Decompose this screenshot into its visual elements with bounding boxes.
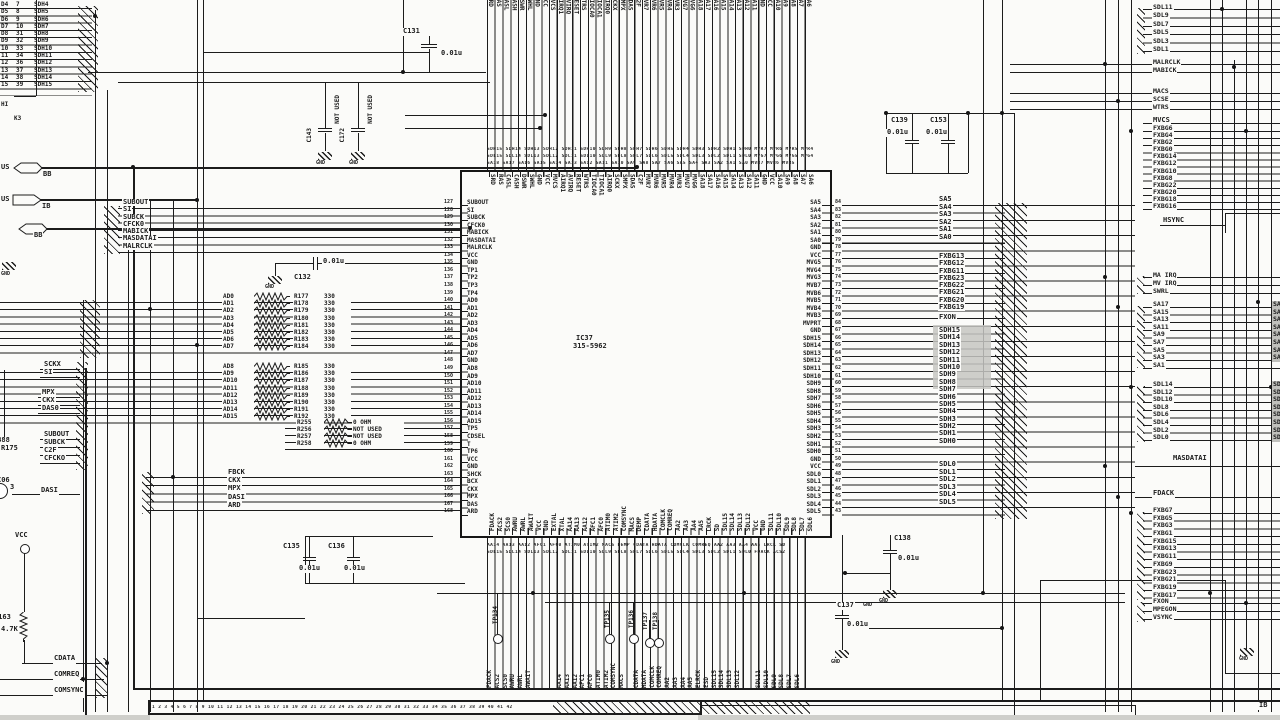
resistor-row: AD7 R184330 [222,343,351,350]
bus-tag-id: BB [42,171,52,179]
connector-row: D710SDH7 [0,23,81,30]
cap-note: NOT USED [367,95,374,124]
pin-number: 3 [9,484,15,492]
left-sig-g3: SUBOUTSUBCKC2FCFCKO [43,430,70,462]
bottom-net-labels-g2: AA14AA13AA12AFC1AFC0ATIM0ATIM2COMSYNCMAC… [556,650,626,688]
net-label-fdack: FDACK [1152,490,1175,498]
resistor-icon [254,412,290,421]
bottom-net-labels-g3: CDATAHDATACOMCLKCOMREQAA2AA3AA4AA5ELRCKE… [633,650,742,688]
bus-net-row: SDH15 SDH14 SDH13 SDH12 SDH11 SDH10 SDH9… [487,147,960,152]
wire-bundle [822,205,830,518]
testpoint-icon [654,638,664,648]
gnd-label: GND [315,161,326,167]
bus-net-row: AA14 AA13 AA12 AFC1 AFC0 ATIM0 ATIM2 MAC… [487,543,809,548]
bus-tag-id: IB [41,203,51,211]
cap-value: 0.01u [440,50,463,58]
cap-ref: C135 [282,543,301,551]
left-bottom-signals: CDATACOMREQCOMSYNC [53,650,85,698]
bus-tag-name: US [0,196,10,204]
bus-net-row: SA18 SA17 SA16 SA15 SA14 SA13 SA12 SA11 … [487,161,960,166]
ic-part-number: 315-5962 [572,343,608,351]
connector-row: 1337SDH13 [0,67,81,74]
testpoint-label: TP136 [628,610,635,628]
testpoint-icon [629,634,639,644]
resistor-row: R258 0 OHM [293,440,404,447]
bus-tag-icon [12,194,42,206]
junction-dot [1000,626,1004,630]
ic-right-pin-numbers: 8483828180797877767574737271706968676665… [834,199,842,516]
resistor-array-low: AD0 R177330 AD1 R178330 AD2 R179330 AD3 … [222,293,351,351]
cap-ref: C172 [339,128,346,142]
junction-dot [148,307,152,311]
edge-col-clk: MALRCLKMABICK [1152,58,1181,74]
connector-row: 1438SDH14 [0,74,81,81]
cap-ref: C139 [890,117,909,125]
top-edge-net-labels: SRDRASCASLCASHDSWRSWHLGNDVCCMVCSAIRQ1AVI… [487,0,813,18]
bus-net-row: SDL15 SDL14 SDL13 SDL12 SDL11 SDL10 SDL9… [487,154,960,159]
sub-net-labels: SUBOUTSISUBCKCFCK0MABICKMASDATAIMALRCLK [122,199,158,250]
junction-dot [1103,62,1107,66]
gnd-label: GND [264,285,275,291]
edge-col-fxbg-odd: FXBG7FXBG5FXBG3FXBG1FXBG15FXBG13FXBG11FX… [1152,507,1177,599]
edge-col-irq: MA IRQMV IRQSWRL [1152,271,1177,295]
connector-row: D831SDH8 [0,30,81,37]
junction-dot [1103,464,1107,468]
testpoint-icon [605,634,615,644]
signal-labels: FBCKCKXMPXDASIARD [227,468,246,509]
junction-dot [531,591,535,595]
cap-value: 0.01u [322,258,345,266]
cap-ref: C138 [893,535,912,543]
junction-dot [1244,129,1248,133]
net-col-sdh: SDH15SDH14SDH13SDH12SDH11SDH10SDH9SDH8SD… [938,327,961,445]
junction-dot [1208,591,1212,595]
bus-tag-id: IB [1258,702,1268,710]
junction-dot [1244,601,1248,605]
edge-col-sdl-odd: SDL11SDL9SDL7SDL5SDL3SDL1 [1152,3,1174,53]
net-col-sa: SA5SA4SA3SA2SA1SA0 [938,196,953,241]
pin-stub-layer [0,0,1280,720]
connector-row: 1134SDH11 [0,52,81,59]
bottom-net-labels-g1: FDACKACS2SCS0AWRUAWRLAWAIT [486,650,533,688]
junction-dot [1103,275,1107,279]
resistor-ref-clipped: R175 [0,445,19,453]
junction-dot [1129,385,1133,389]
edge-col-fxbg-even: FXBG6FXBG4FXBG2FXBG0FXBG14FXBG12FXBG10FX… [1152,125,1177,210]
pin-number-row: 1 2 3 4 5 6 7 8 9 10 11 12 13 14 15 16 1… [152,705,697,710]
cap-ref: C131 [402,28,421,36]
junction-dot [742,591,746,595]
connector-row: D932SDH9 [0,37,81,44]
junction-dot [105,661,109,665]
edge-col-sdl-even: SDL14SDL12SDL10SDL8SDL6SDL4SDL2SDL0 [1152,381,1174,442]
net-col-sdl: SDL0SDL1SDL2SDL3SDL4SDL5 [938,461,957,506]
junction-dot [543,113,547,117]
bus-net-row: SDL15 SDL14 SDL13 SDL12 SDL11 SDL10 SDL9… [487,550,809,555]
junction-dot [1116,305,1120,309]
resistor-icon [254,342,290,351]
testpoint-label: TP134 [492,606,499,624]
junction-dot [93,14,97,18]
testpoint-label: TP135 [604,610,611,628]
net-label-dasi: DASI [40,487,59,495]
net-col-fxbg: FXBG13FXBG12FXBG11FXBG23FXBG22FXBG21FXBG… [938,253,965,311]
cap-value: 0.01u [298,565,321,573]
resistor-icon [19,612,28,642]
ic-bottom-pin-labels: FDACKACS2SCS0AWRUAWRLAWAITVCCGNDEXTALXTA… [489,447,815,531]
edge-col-misc: FXONMPEGONVSYNC [1152,597,1177,621]
junction-dot [538,126,542,130]
cap-ref: C132 [293,274,312,282]
testpoint-label: TP137 [642,612,649,630]
gnd-label: GND [0,272,11,278]
testpoint-icon [493,634,503,644]
cap-value: 0.01u [925,129,948,137]
junction-dot [195,198,199,202]
junction-dot [1129,511,1133,515]
junction-dot [966,111,970,115]
junction-dot [171,475,175,479]
bus-tag-id: BB [33,232,43,240]
vcc-label: VCC [14,532,29,540]
junction-dot [981,591,985,595]
connector-ref: K3 [13,116,22,123]
junction-dot [884,111,888,115]
resistor-icon [324,439,352,448]
cap-value: 0.01u [846,621,869,629]
edge-col-ctl: MACSSCSEWTRS [1152,87,1170,111]
cap-ref: C153 [929,117,948,125]
connector-row: 1539SDH15 [0,81,81,88]
ic-top-pin-labels: SRDRASCASLCASHDSWRSWHLGNDVCCMVCSAIRQ1AVI… [489,174,815,196]
cap-note: NOT USED [334,95,341,124]
edge-col-sa-odd: SA17SA15SA13SA11SA9SA7SA5SA3SA1 [1152,301,1170,369]
junction-dot [131,165,135,169]
gnd-label: GND [878,599,889,605]
connector-row: 1236SDH12 [0,59,81,66]
sheet-edge-box [150,715,698,720]
cap-ref: C136 [327,543,346,551]
cap-ref: C137 [836,602,855,610]
ic-left-pin-numbers: 1271281291301311321331341351361371381391… [428,199,454,516]
gnd-label: GND [1238,657,1249,663]
schematic-sheet: IC37 315-5962 12712812913013113213313413… [0,0,1280,720]
resistor-value: 4.7K [0,626,19,634]
left-sig-g1: SCKXSI [43,360,62,376]
junction-dot [843,571,847,575]
connector-row: 1033SDH10 [0,45,81,52]
left-sig-g2: MPXCKXDAS0 [41,388,60,412]
connector-row: D58SDH5 [0,8,81,15]
junction-dot [401,70,405,74]
junction-dot [1116,495,1120,499]
bus-tag-icon [13,162,43,174]
edge-col-clipped-sdl: SDL15SDL13SDL11SDL9SDL7SDL5SDL3SDL1 [1272,381,1280,442]
junction-dot [1256,300,1260,304]
bottom-net-labels-g4: SDL11SDL10SDL9SDL8SDL7SDL6 [755,650,802,688]
testpoint-label: TP138 [652,612,659,630]
junction-dot [1220,7,1224,11]
connector-hi-label: HI [0,102,9,109]
junction-dot [1000,111,1004,115]
net-label-fxon: FXON [938,314,957,322]
connector-row: D47SDH4 [0,1,81,8]
connector-rows: D47SDH4 D58SDH5 D69SDH6 D710SDH7 D831SDH… [0,1,81,89]
resistor-array-extra: R255 0 OHM R256 NOT USED R257 NOT USED R… [293,419,404,447]
junction-dot [1129,129,1133,133]
net-label-hsync: HSYNC [1162,217,1185,225]
gnd-label: GND [830,660,841,666]
cap-value: 0.01u [886,129,909,137]
cap-value: 0.01u [897,555,920,563]
gnd-label: GND [348,161,359,167]
junction-dot [1232,65,1236,69]
gnd-label: GND [862,603,873,609]
resistor-ref: R163 [0,614,12,622]
resistor-array-high: AD8 R185330 AD9 R186330 AD10 R187330 AD1… [222,363,351,421]
bus-tag-name: US [0,164,10,172]
net-label-masdatai: MASDATAI [1172,455,1208,463]
junction-dot [195,343,199,347]
edge-col-clipped-sa: SA16SA14SA12SA10SA8SA6SA4SA2 [1272,301,1280,362]
vcc-icon [20,544,30,554]
connector-row: D69SDH6 [0,16,81,23]
junction-dot [1116,99,1120,103]
cap-value: 0.01u [343,565,366,573]
cap-ref: C143 [306,128,313,142]
